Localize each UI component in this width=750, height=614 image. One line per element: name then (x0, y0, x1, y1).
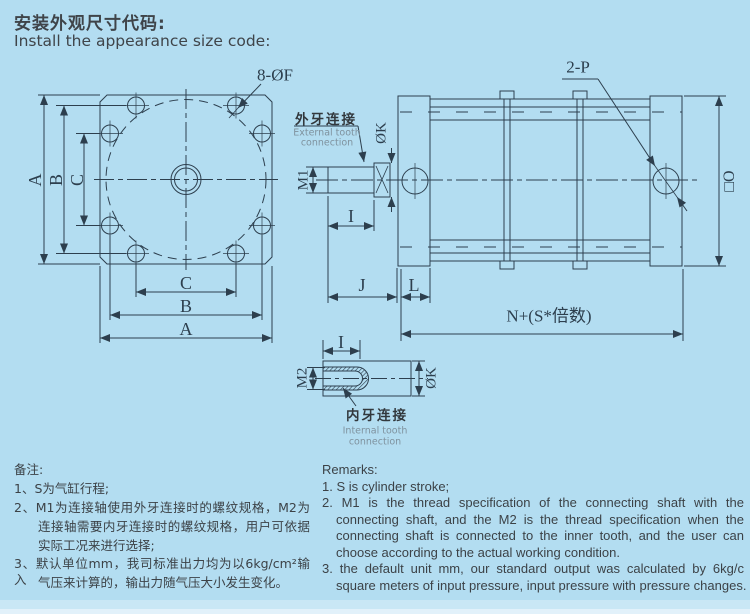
remarks-en-line: connecting shaft, and the M2 is the thre… (336, 512, 744, 528)
remarks-zh-line: 气压来计算的，输出力随气压大小发生变化。 (38, 575, 288, 591)
bolt-holes-label: 8-ØF (257, 67, 293, 84)
remarks-en-line: connecting shaft is connected to the inn… (336, 528, 744, 544)
internal-tooth-label-en1: Internal tooth (343, 426, 408, 437)
external-tooth-label-en2: connection (301, 138, 353, 149)
page: 安装外观尺寸代码: Install the appearance size co… (0, 0, 750, 614)
dim-label-i-internal: I (338, 333, 344, 351)
rod-diameter-label: ØK (375, 122, 390, 144)
square-size-label: □O (722, 170, 738, 191)
dim-label-b-left: B (47, 174, 65, 186)
external-thread-shaft (294, 126, 700, 303)
dim-label-i: I (348, 207, 354, 225)
remarks-zh-line: 2、M1为连接轴使用外牙连接时的螺纹规格，M2为 (14, 500, 310, 516)
front-view-flange (38, 84, 278, 343)
dia-k-label: ØK (425, 367, 440, 389)
thread-m1-label: M1 (297, 170, 312, 191)
remarks-zh-line: 实际工况来进行选择; (38, 538, 155, 554)
remarks-en-line: 1. S is cylinder stroke; (322, 479, 449, 495)
total-length-label: N+(S*倍数) (506, 308, 591, 325)
dim-label-c-bottom: C (180, 274, 192, 292)
remarks-zh-line: 1、S为气缸行程; (14, 481, 109, 497)
internal-thread-detail (307, 340, 428, 406)
ports-label: 2-P (566, 59, 590, 76)
external-tooth-label-zh: 外牙连接 (295, 108, 357, 128)
remarks-en-line: 3. the default unit mm, our standard out… (322, 561, 744, 577)
dim-label-j: J (358, 276, 365, 294)
internal-tooth-label-zh: 内牙连接 (346, 404, 408, 424)
page-title-en: Install the appearance size code: (14, 32, 270, 50)
remarks-en-line: square meters of input pressure, input p… (336, 578, 746, 594)
remarks-zh-line: 连接轴需要内牙连接时的螺纹规格，用户可依据 (38, 519, 310, 535)
dim-label-a-left: A (26, 174, 44, 187)
remarks-en-line: choose according to the actual working c… (336, 545, 620, 561)
dim-label-a-bottom: A (180, 320, 193, 338)
page-title-zh: 安装外观尺寸代码: (14, 9, 166, 34)
remarks-en-line: 2. M1 is the thread specification of the… (322, 495, 744, 511)
dim-label-b-bottom: B (180, 297, 192, 315)
dim-label-c-left: C (68, 174, 86, 186)
dim-label-l: L (409, 276, 420, 294)
thread-m2-label: M2 (296, 368, 311, 389)
remarks-zh-heading: 备注: (14, 462, 43, 478)
internal-tooth-label-en2: connection (349, 437, 401, 448)
remarks-en-heading: Remarks: (322, 462, 378, 478)
side-view-cylinder (328, 79, 726, 341)
